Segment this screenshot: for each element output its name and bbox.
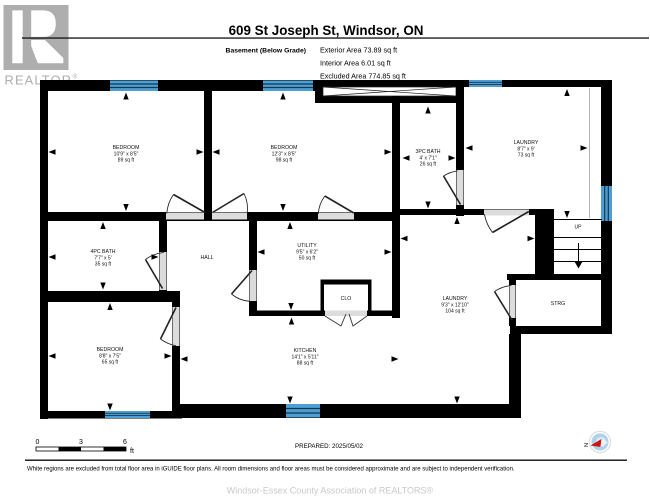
svg-text:Basement (Below Grade): Basement (Below Grade): [226, 48, 306, 55]
svg-text:UTILITY: UTILITY: [297, 243, 317, 249]
svg-text:LAUNDRY: LAUNDRY: [443, 296, 468, 302]
svg-text:UP: UP: [575, 225, 583, 231]
svg-text:26 sq ft: 26 sq ft: [420, 162, 437, 168]
svg-text:50 sq ft: 50 sq ft: [299, 256, 316, 262]
svg-text:Interior Area 6.01 sq ft: Interior Area 6.01 sq ft: [320, 59, 391, 68]
svg-text:STRG: STRG: [551, 301, 565, 307]
svg-text:KITCHEN: KITCHEN: [294, 348, 317, 354]
svg-text:88 sq ft: 88 sq ft: [297, 361, 314, 367]
svg-text:CLO: CLO: [341, 296, 352, 302]
svg-text:HALL: HALL: [201, 255, 214, 261]
svg-text:Windsor-Essex County Associati: Windsor-Essex County Association of REAL…: [227, 486, 434, 496]
svg-text:104 sq ft: 104 sq ft: [445, 309, 465, 315]
svg-text:BEDROOM: BEDROOM: [271, 145, 298, 151]
svg-text:3PC BATH: 3PC BATH: [416, 149, 441, 155]
svg-text:ft: ft: [130, 448, 134, 455]
svg-text:35 sq ft: 35 sq ft: [95, 262, 112, 268]
svg-text:89 sq ft: 89 sq ft: [118, 158, 135, 164]
svg-text:BEDROOM: BEDROOM: [113, 145, 140, 151]
svg-text:White regions are excluded fro: White regions are excluded from total fl…: [27, 467, 515, 473]
svg-text:N: N: [584, 443, 590, 447]
svg-text:609 St Joseph St, Windsor, ON: 609 St Joseph St, Windsor, ON: [229, 23, 424, 38]
svg-text:3: 3: [79, 439, 83, 446]
svg-text:6: 6: [123, 439, 127, 446]
svg-text:PREPARED: 2025/05/02: PREPARED: 2025/05/02: [295, 443, 364, 450]
svg-text:LAUNDRY: LAUNDRY: [514, 140, 539, 146]
svg-text:0: 0: [36, 439, 40, 446]
svg-text:4PC BATH: 4PC BATH: [91, 249, 116, 255]
svg-text:98 sq ft: 98 sq ft: [276, 158, 293, 164]
svg-text:BEDROOM: BEDROOM: [97, 347, 124, 353]
svg-text:Exterior Area 73.89 sq ft: Exterior Area 73.89 sq ft: [320, 46, 397, 55]
svg-text:65 sq ft: 65 sq ft: [102, 360, 119, 366]
svg-text:73 sq ft: 73 sq ft: [518, 153, 535, 159]
svg-text:Excluded Area 774.85 sq ft: Excluded Area 774.85 sq ft: [320, 72, 406, 81]
